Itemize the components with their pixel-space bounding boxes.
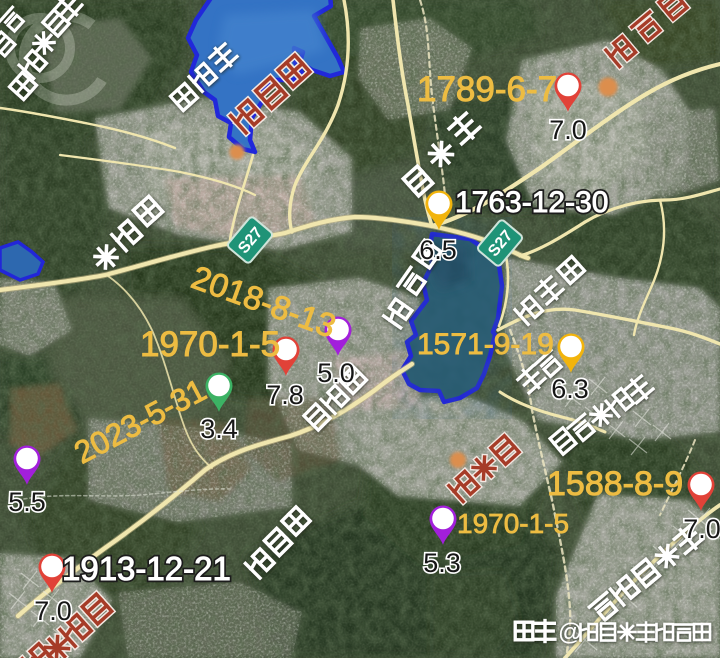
svg-text:1970-1-5: 1970-1-5 bbox=[140, 325, 280, 364]
svg-text:7.0: 7.0 bbox=[34, 596, 72, 626]
svg-text:6.5: 6.5 bbox=[419, 235, 457, 265]
svg-text:5.3: 5.3 bbox=[423, 548, 461, 578]
svg-text:7.0: 7.0 bbox=[683, 514, 720, 544]
svg-text:1970-1-5: 1970-1-5 bbox=[457, 508, 569, 539]
svg-text:1571-9-19: 1571-9-19 bbox=[417, 328, 554, 361]
svg-text:5.0: 5.0 bbox=[317, 358, 355, 388]
svg-text:1789-6-7: 1789-6-7 bbox=[417, 70, 557, 109]
svg-text:5.5: 5.5 bbox=[8, 487, 46, 517]
svg-text:1913-12-21: 1913-12-21 bbox=[62, 550, 231, 587]
svg-text:7.8: 7.8 bbox=[266, 380, 304, 410]
svg-text:1588-8-9: 1588-8-9 bbox=[547, 465, 683, 503]
svg-text:@: @ bbox=[558, 619, 582, 646]
svg-text:1763-12-30: 1763-12-30 bbox=[455, 186, 608, 219]
svg-text:3.4: 3.4 bbox=[200, 414, 238, 444]
svg-text:7.0: 7.0 bbox=[549, 115, 587, 145]
svg-text:6.3: 6.3 bbox=[551, 374, 589, 404]
